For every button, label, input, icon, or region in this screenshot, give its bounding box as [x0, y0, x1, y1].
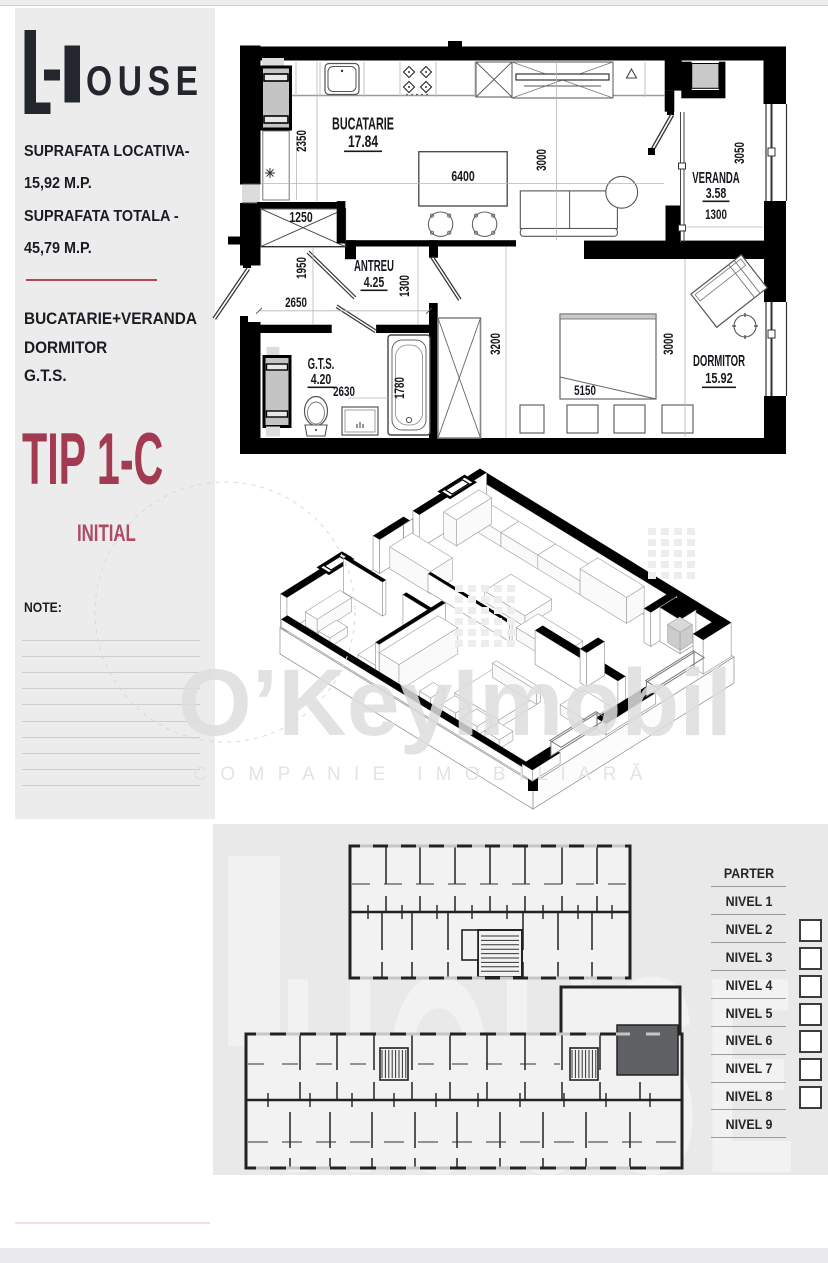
svg-text:VERANDA: VERANDA	[692, 169, 739, 187]
svg-text:C O M P A N I E I M O B I L: C O M P A N I E I M O B I L I A R Ă	[193, 764, 646, 785]
svg-text:4.20: 4.20	[311, 371, 332, 387]
svg-text:1780: 1780	[391, 377, 407, 399]
svg-text:1300: 1300	[705, 206, 727, 222]
svg-text:4.25: 4.25	[364, 274, 385, 290]
svg-text:6400: 6400	[451, 167, 474, 184]
svg-text:15.92: 15.92	[705, 369, 732, 386]
svg-text:ANTREU: ANTREU	[354, 257, 394, 275]
svg-text:3.58: 3.58	[706, 185, 727, 201]
svg-text:O’KeyImobil: O’KeyImobil	[178, 650, 732, 756]
svg-text:3200: 3200	[487, 333, 503, 355]
svg-text:2650: 2650	[285, 294, 307, 310]
svg-text:BUCATARIE: BUCATARIE	[332, 115, 394, 134]
svg-text:17.84: 17.84	[348, 133, 378, 151]
svg-text:3050: 3050	[731, 142, 747, 164]
svg-text:3000: 3000	[660, 333, 676, 355]
svg-text:G.T.S.: G.T.S.	[308, 355, 335, 373]
svg-text:1300: 1300	[396, 275, 412, 297]
svg-text:2350: 2350	[293, 130, 309, 152]
svg-text:DORMITOR: DORMITOR	[693, 352, 746, 370]
svg-text:3000: 3000	[533, 149, 549, 171]
svg-text:2630: 2630	[333, 383, 355, 399]
svg-text:1250: 1250	[289, 208, 312, 225]
svg-text:5150: 5150	[574, 382, 596, 398]
svg-text:1950: 1950	[293, 257, 309, 279]
